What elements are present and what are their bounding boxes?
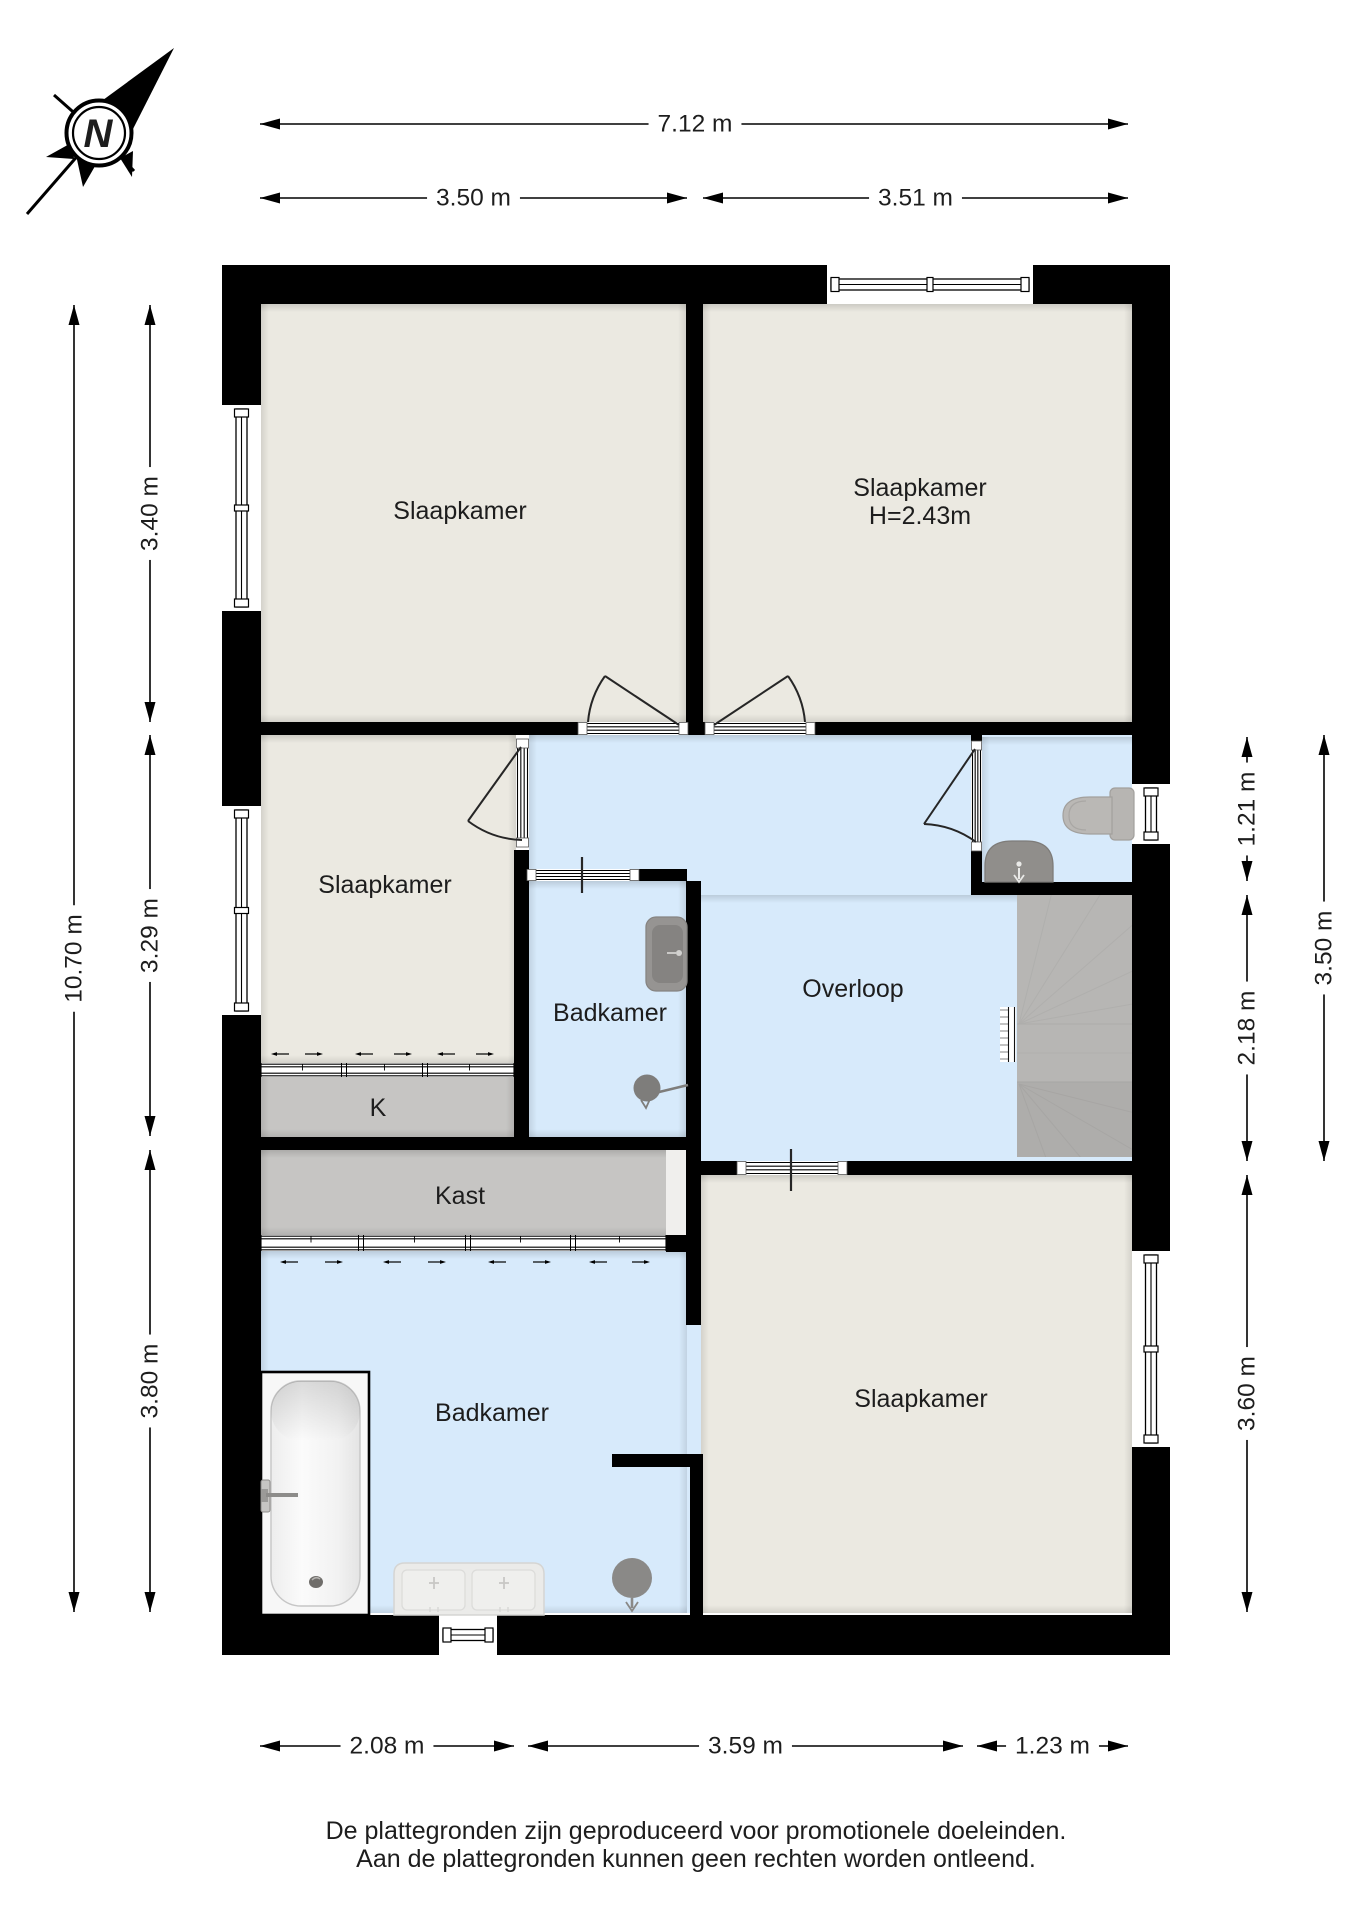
svg-text:1.23 m: 1.23 m xyxy=(1015,1733,1090,1760)
svg-text:Slaapkamer: Slaapkamer xyxy=(854,1385,987,1413)
svg-text:3.50 m: 3.50 m xyxy=(436,185,511,212)
svg-text:Slaapkamer: Slaapkamer xyxy=(393,497,526,525)
svg-text:10.70 m: 10.70 m xyxy=(61,914,88,1003)
svg-text:Overloop: Overloop xyxy=(802,975,903,1003)
svg-text:De plattegronden zijn geproduc: De plattegronden zijn geproduceerd voor … xyxy=(326,1817,1067,1845)
svg-text:3.59 m: 3.59 m xyxy=(708,1733,783,1760)
svg-text:2.08 m: 2.08 m xyxy=(350,1733,425,1760)
svg-text:7.12 m: 7.12 m xyxy=(658,111,733,138)
svg-text:H=2.43m: H=2.43m xyxy=(869,502,971,530)
svg-text:3.51 m: 3.51 m xyxy=(878,185,953,212)
svg-text:3.29 m: 3.29 m xyxy=(137,898,164,973)
svg-text:2.18 m: 2.18 m xyxy=(1234,991,1261,1066)
svg-text:N: N xyxy=(84,112,114,156)
svg-text:3.80 m: 3.80 m xyxy=(137,1344,164,1419)
svg-text:Badkamer: Badkamer xyxy=(553,999,667,1027)
svg-text:Aan de plattegronden kunnen ge: Aan de plattegronden kunnen geen rechten… xyxy=(356,1845,1036,1873)
svg-text:Badkamer: Badkamer xyxy=(435,1399,549,1427)
svg-text:K: K xyxy=(370,1094,387,1122)
svg-text:3.50 m: 3.50 m xyxy=(1311,911,1338,986)
svg-text:3.40 m: 3.40 m xyxy=(137,476,164,551)
svg-text:1.21 m: 1.21 m xyxy=(1234,772,1261,847)
svg-text:Slaapkamer: Slaapkamer xyxy=(318,871,451,899)
svg-text:3.60 m: 3.60 m xyxy=(1234,1356,1261,1431)
svg-text:Kast: Kast xyxy=(435,1182,485,1210)
svg-text:Slaapkamer: Slaapkamer xyxy=(853,474,986,502)
